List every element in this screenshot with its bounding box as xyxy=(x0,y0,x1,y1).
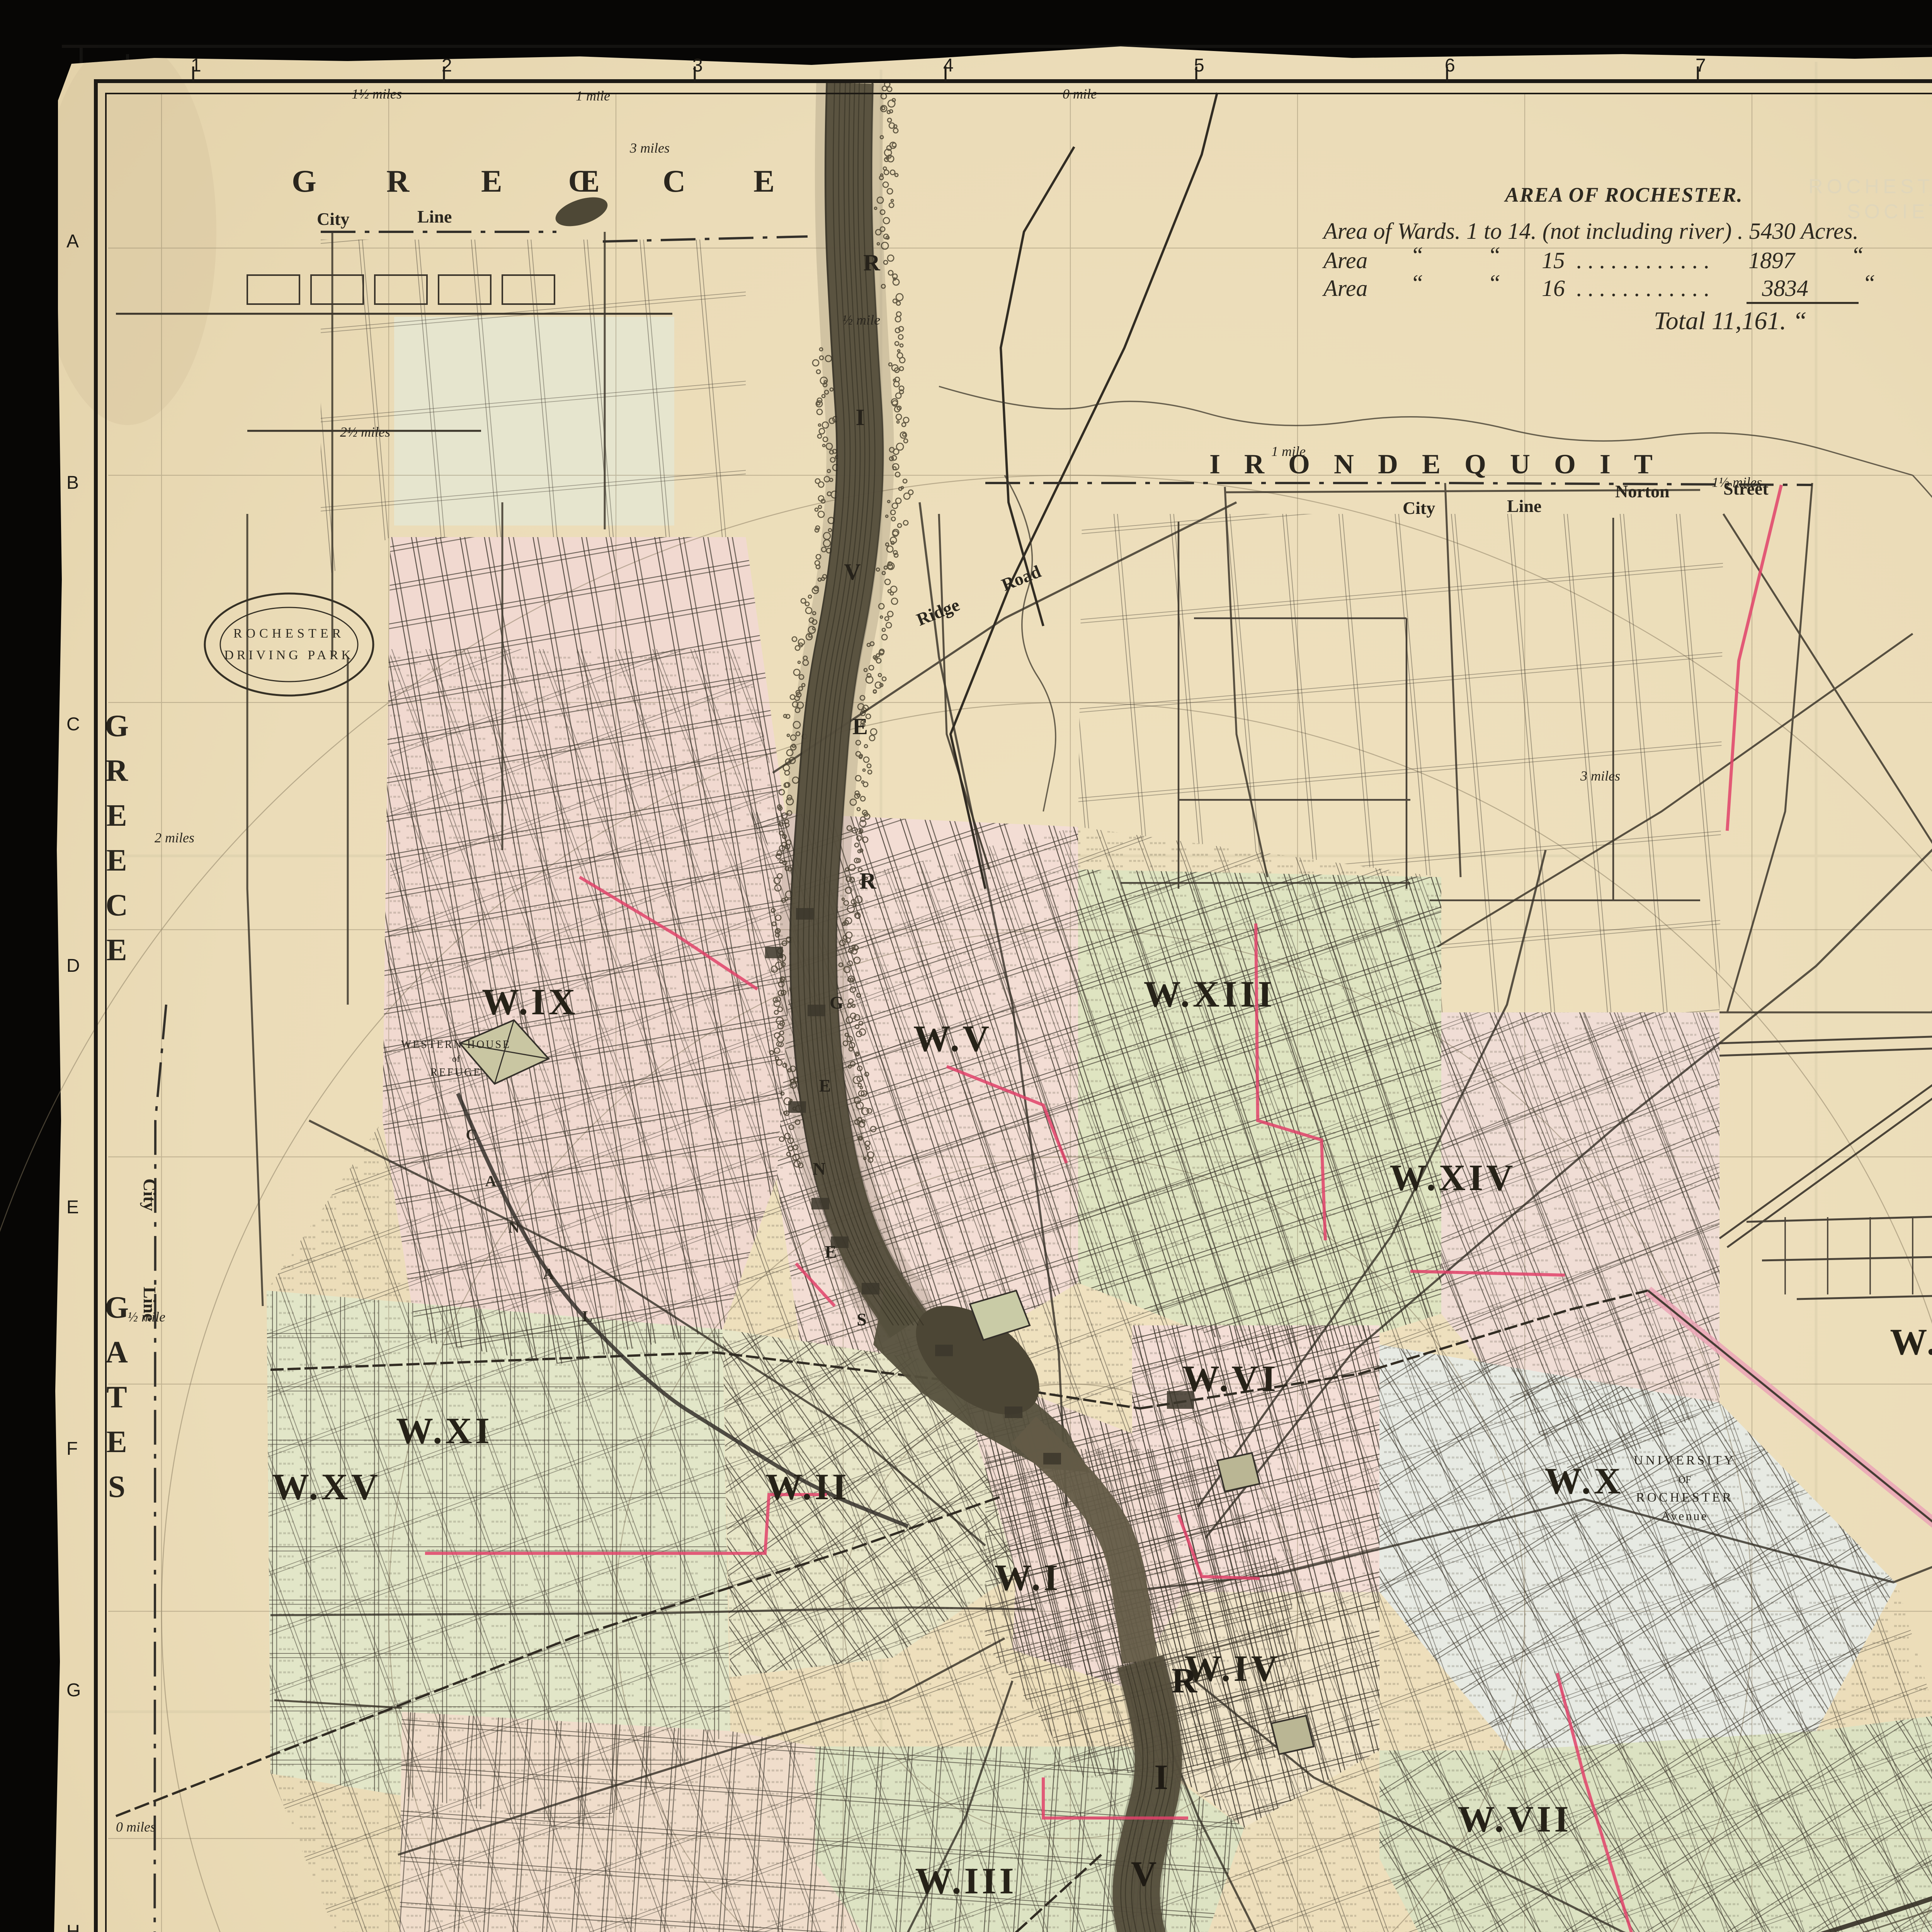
svg-text:“: “ xyxy=(1410,270,1423,296)
svg-text:W.III: W.III xyxy=(915,1860,1017,1901)
svg-text:3 miles: 3 miles xyxy=(629,140,670,156)
svg-text:Line: Line xyxy=(417,207,452,226)
svg-text:C: C xyxy=(663,163,685,199)
svg-text:WESTERN HOUSE: WESTERN HOUSE xyxy=(401,1039,511,1051)
svg-text:W.XVI: W.XVI xyxy=(1890,1321,1932,1362)
svg-text:E: E xyxy=(481,163,502,199)
svg-text:W.XIII: W.XIII xyxy=(1144,973,1276,1015)
svg-text:0 miles: 0 miles xyxy=(116,1819,156,1835)
svg-text:C: C xyxy=(466,1126,477,1143)
svg-text:“: “ xyxy=(1851,242,1864,268)
svg-text:Total 11,161. “: Total 11,161. “ xyxy=(1654,307,1807,335)
svg-text:Area: Area xyxy=(1322,276,1367,301)
svg-text:I: I xyxy=(855,405,864,430)
svg-text:W.II: W.II xyxy=(765,1466,850,1507)
svg-text:GREECE: GREECE xyxy=(100,709,134,978)
svg-text:1 mile: 1 mile xyxy=(1271,444,1306,459)
svg-text:City: City xyxy=(1403,498,1435,518)
svg-text:A: A xyxy=(543,1265,554,1282)
svg-text:N: N xyxy=(813,1159,825,1179)
svg-text:“: “ xyxy=(1410,242,1423,268)
svg-text:C: C xyxy=(66,714,80,735)
svg-text:W.XV: W.XV xyxy=(272,1466,381,1507)
svg-text:½ mile: ½ mile xyxy=(128,1309,165,1325)
svg-text:A: A xyxy=(66,231,79,252)
svg-text:E: E xyxy=(753,163,775,199)
svg-text:1 mile: 1 mile xyxy=(576,88,610,104)
svg-text:ROCHESTER: ROCHESTER xyxy=(233,626,345,641)
svg-text:W.IV: W.IV xyxy=(1184,1648,1281,1689)
svg-text:V: V xyxy=(1131,1854,1156,1893)
svg-text:W.IX: W.IX xyxy=(482,981,578,1022)
svg-text:. . . . . . . . . . . .: . . . . . . . . . . . . xyxy=(1577,248,1710,273)
svg-text:2½ miles: 2½ miles xyxy=(340,424,390,440)
svg-text:W.V: W.V xyxy=(913,1018,993,1059)
svg-text:N: N xyxy=(509,1219,520,1236)
svg-text:Area: Area xyxy=(1322,248,1367,273)
svg-text:Norton: Norton xyxy=(1615,481,1670,501)
svg-text:R: R xyxy=(386,163,410,199)
svg-text:A: A xyxy=(485,1172,497,1190)
svg-text:1897: 1897 xyxy=(1748,248,1796,273)
svg-text:R: R xyxy=(859,868,876,894)
svg-text:ROCHESTER: ROCHESTER xyxy=(1636,1490,1733,1505)
svg-text:15: 15 xyxy=(1542,248,1565,273)
svg-text:G: G xyxy=(830,993,844,1012)
svg-text:G: G xyxy=(292,163,316,199)
svg-text:R: R xyxy=(863,250,880,276)
svg-text:ROCHESTER HISTORICAL: ROCHESTER HISTORICAL xyxy=(1808,175,1932,198)
svg-text:1½ miles: 1½ miles xyxy=(1712,474,1762,490)
svg-text:W.X: W.X xyxy=(1545,1460,1624,1502)
svg-text:Line: Line xyxy=(1507,496,1541,516)
svg-text:½ mile: ½ mile xyxy=(842,312,880,328)
svg-text:AREA OF ROCHESTER.: AREA OF ROCHESTER. xyxy=(1504,183,1743,206)
svg-text:Area of Wards. 1 to 14. (not i: Area of Wards. 1 to 14. (not including r… xyxy=(1322,218,1859,244)
svg-text:H: H xyxy=(66,1922,80,1932)
svg-text:I: I xyxy=(1154,1757,1168,1797)
svg-text:City: City xyxy=(140,1179,160,1211)
svg-text:W.VI: W.VI xyxy=(1182,1358,1279,1399)
svg-text:W.XIV: W.XIV xyxy=(1389,1157,1516,1198)
svg-text:REFUGE: REFUGE xyxy=(430,1066,482,1078)
svg-text:2 miles: 2 miles xyxy=(155,830,194,845)
svg-text:“: “ xyxy=(1488,270,1500,296)
svg-text:3834: 3834 xyxy=(1762,276,1808,301)
svg-text:. . . . . . . . . . . .: . . . . . . . . . . . . xyxy=(1577,276,1710,301)
svg-text:E: E xyxy=(852,714,868,739)
svg-text:“: “ xyxy=(1862,270,1875,296)
svg-text:L: L xyxy=(582,1308,593,1325)
svg-text:E: E xyxy=(66,1197,79,1218)
svg-text:W.XI: W.XI xyxy=(396,1410,493,1451)
svg-text:Avenue: Avenue xyxy=(1661,1509,1708,1523)
svg-text:S: S xyxy=(857,1310,867,1329)
svg-text:SOCIETY LIBRARY: SOCIETY LIBRARY xyxy=(1847,201,1932,223)
svg-text:“: “ xyxy=(1488,242,1500,268)
svg-text:UNIVERSITY: UNIVERSITY xyxy=(1634,1453,1736,1468)
svg-text:W.I: W.I xyxy=(995,1557,1061,1598)
svg-text:16: 16 xyxy=(1542,276,1565,301)
svg-text:OF: OF xyxy=(1678,1474,1691,1485)
svg-text:of: of xyxy=(452,1054,460,1064)
svg-text:V: V xyxy=(844,559,861,585)
svg-text:D: D xyxy=(66,956,80,976)
svg-text:G: G xyxy=(66,1680,81,1701)
svg-text:B: B xyxy=(66,473,79,493)
svg-text:3 miles: 3 miles xyxy=(1580,768,1620,784)
svg-text:City: City xyxy=(317,209,349,229)
svg-text:Œ: Œ xyxy=(568,163,600,199)
svg-text:DRIVING PARK: DRIVING PARK xyxy=(224,648,354,662)
svg-text:F: F xyxy=(66,1439,78,1459)
svg-text:R: R xyxy=(1172,1661,1198,1700)
svg-text:E: E xyxy=(819,1076,831,1095)
svg-text:W.VII: W.VII xyxy=(1458,1798,1571,1840)
svg-text:E: E xyxy=(825,1242,837,1262)
